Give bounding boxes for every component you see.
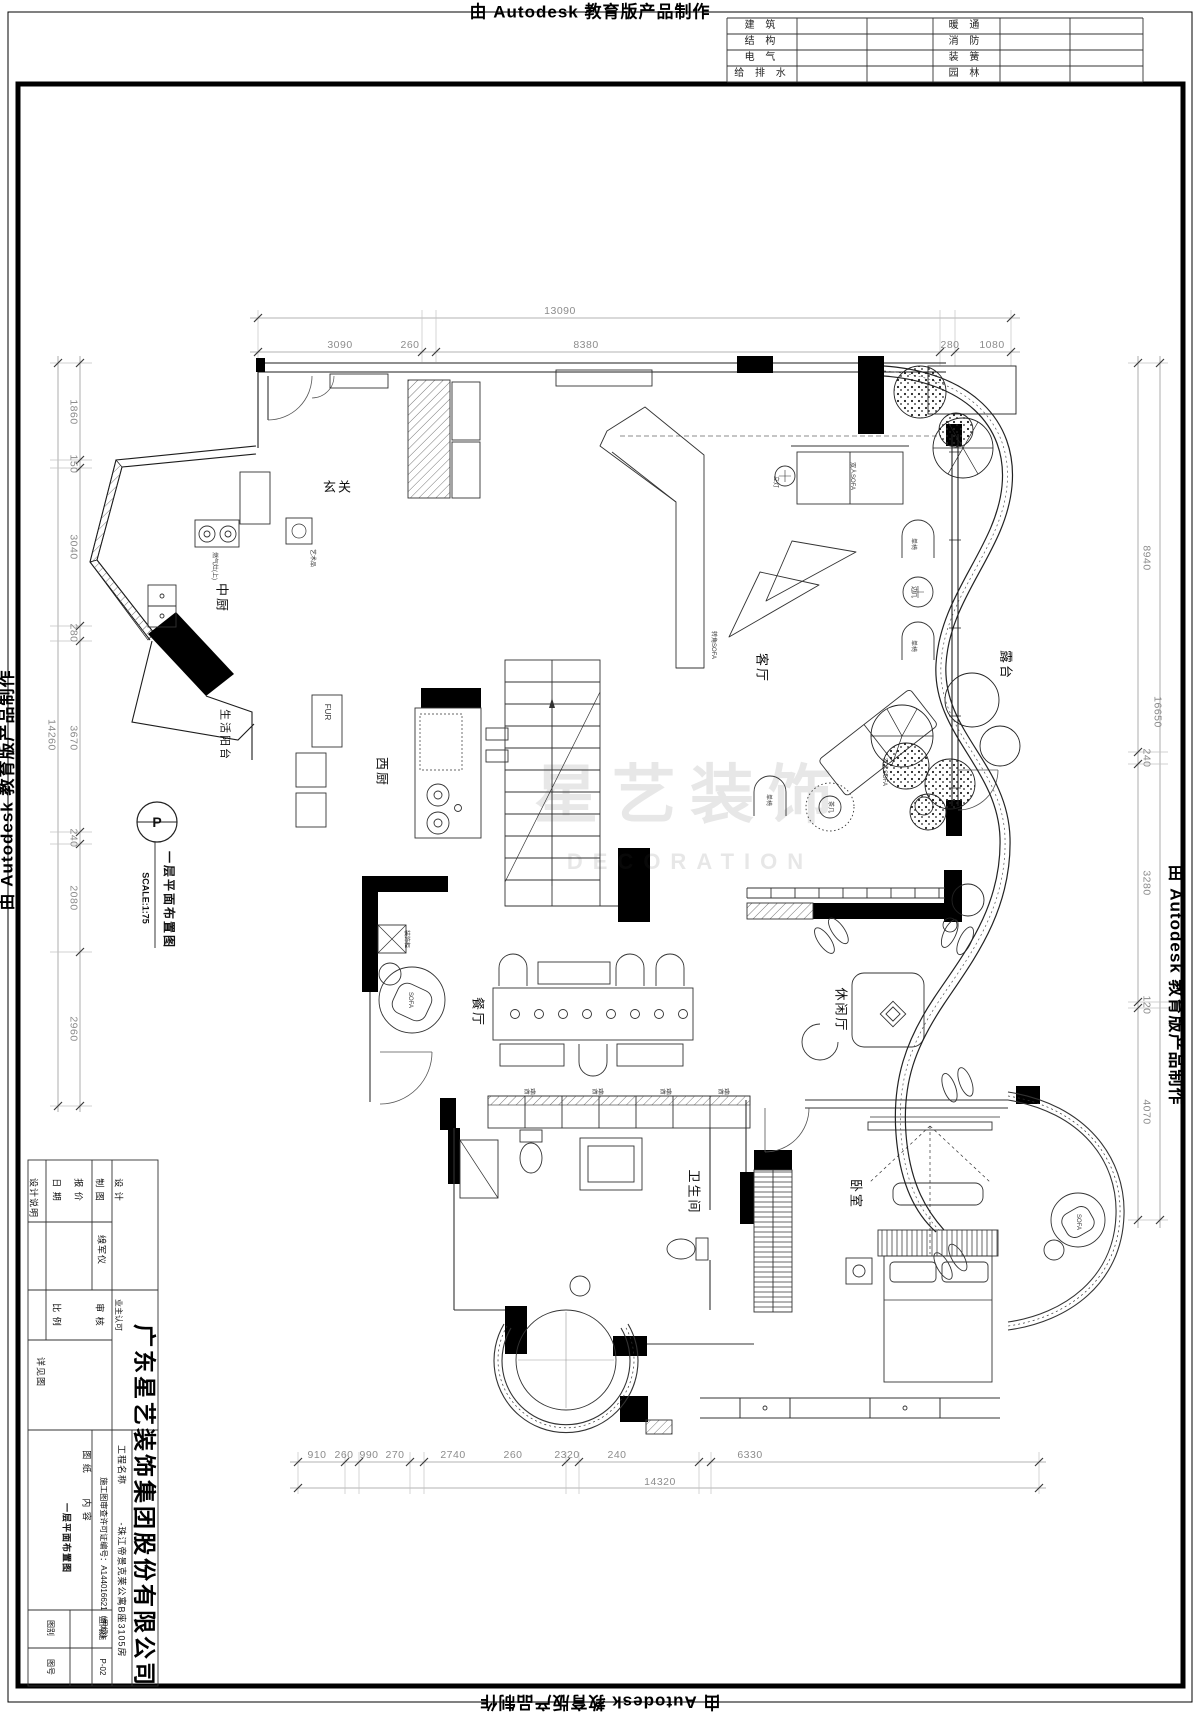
dim-left-seg-4: 3670	[68, 725, 79, 750]
annotation-dining-cabinet-1: 餐柜	[524, 1087, 536, 1093]
dim-right-seg-1: 240	[1141, 748, 1152, 767]
stamp-title: 一层平面布置图	[163, 851, 175, 949]
table-cell-struct: 结 构	[745, 37, 780, 47]
autodesk-banner-left: 由 Autodesk 教育版产品制作	[0, 670, 16, 911]
table-cell-plumb: 给 排 水	[734, 69, 790, 79]
dim-bottom-seg-4: 2740	[440, 1450, 465, 1461]
table-cell-fire: 消 防	[949, 37, 984, 47]
terrace	[871, 366, 1020, 1232]
stamp-mark: P	[152, 815, 161, 829]
annotation-chair-1: 单椅	[910, 538, 916, 550]
stamp-scale: SCALE:1:75	[141, 872, 150, 924]
dim-bottom-seg-2: 990	[359, 1450, 378, 1461]
titleblock-sheet-content: 一层平面布置图	[62, 1503, 71, 1573]
dim-left-seg-5: 240	[68, 828, 79, 847]
room-label-terrace: 露台	[1000, 650, 1013, 680]
dim-top-seg-4: 1080	[979, 340, 1004, 351]
titleblock-design-label: 设 计	[114, 1178, 123, 1202]
dim-left-seg-1: 150	[68, 454, 79, 473]
titleblock-content-label: 内 容	[82, 1498, 91, 1522]
dim-left-seg-3: 280	[68, 623, 79, 642]
room-label-bath: 卫生间	[688, 1169, 701, 1214]
titleblock-project-label: 工程名称	[117, 1445, 126, 1485]
titleblock-note: 设计说明	[29, 1178, 38, 1218]
dim-right-seg-2: 3280	[1141, 870, 1152, 895]
watermark-en: DECORATION	[567, 851, 813, 873]
annotation-chair-3: 单椅	[765, 794, 771, 806]
annotation-dining-cabinet-4: 餐柜	[718, 1087, 730, 1093]
dim-bottom-seg-5: 260	[503, 1450, 522, 1461]
annotation-fur: FUR	[323, 704, 331, 720]
dim-bottom-seg-7: 240	[607, 1450, 626, 1461]
table-cell-arch: 建 筑	[745, 21, 780, 31]
dim-bottom-seg-3: 270	[385, 1450, 404, 1461]
autodesk-banner-right: 由 Autodesk 教育版产品制作	[1168, 865, 1185, 1106]
titleblock-project-value: -珠江帝景克莱公寓B座3105房	[117, 1522, 126, 1657]
titleblock-number-value: P-02	[98, 1659, 106, 1676]
dim-left-seg-0: 1860	[68, 399, 79, 424]
annotation-art: 艺术品	[309, 549, 315, 567]
table-cell-hvac: 暖 通	[949, 21, 984, 31]
annotation-dining-cabinet-3: 餐柜	[660, 1087, 672, 1093]
dim-bottom-total: 14320	[644, 1477, 676, 1488]
cad-sheet: 由 Autodesk 教育版产品制作 由 Autodesk 教育版产品制作 由 …	[0, 0, 1200, 1714]
room-label-mid-kitchen: 中厨	[216, 583, 229, 613]
room-label-west-kitchen: 西厨	[376, 757, 389, 787]
titleblock-review-label: 审 核	[95, 1303, 104, 1327]
annotation-chair-2: 单椅	[910, 640, 916, 652]
annotation-sofa-corner: 转角SOFA	[710, 631, 716, 659]
annotation-bay-sofa: SOFA	[1075, 1214, 1081, 1230]
dim-top-seg-3: 280	[940, 340, 959, 351]
dim-bottom-seg-6: 2320	[554, 1450, 579, 1461]
titleblock-company: 广东星艺装饰集团股份有限公司	[133, 1324, 156, 1688]
titleblock-category-label: 图别	[46, 1620, 54, 1636]
room-label-leisure: 休闲厅	[835, 987, 848, 1032]
dimension-ticks	[54, 314, 1164, 1492]
bathroom-fixtures	[454, 1128, 710, 1310]
room-label-bedroom: 卧室	[850, 1179, 863, 1209]
dim-right-seg-3: 120	[1141, 995, 1152, 1014]
dim-left-total: 14260	[46, 719, 57, 751]
dim-top-total: 13090	[544, 306, 576, 317]
annotation-stove: 燃气灶(上)	[211, 552, 217, 580]
room-label-dining: 餐厅	[472, 997, 485, 1027]
living-window-wall	[620, 434, 998, 810]
titleblock-designer: 缐军仪	[97, 1235, 106, 1265]
leisure-furniture	[802, 915, 977, 1282]
dim-top-seg-2: 8380	[573, 340, 598, 351]
dim-left-seg-2: 3040	[68, 534, 79, 559]
annotation-side-table: 边几	[910, 586, 916, 598]
entry-cabinets	[330, 370, 652, 498]
titleblock-quote-label: 报 价	[74, 1178, 83, 1202]
titleblock-number-label: 图号	[46, 1659, 54, 1675]
titleblock-draft-label: 制 图	[95, 1178, 104, 1202]
room-label-living: 客厅	[756, 653, 769, 683]
table-cell-elec: 电 气	[745, 53, 780, 63]
titleblock-owner-label: 业主认可	[114, 1299, 122, 1331]
annotation-dining-cabinet-2: 餐柜	[592, 1087, 604, 1093]
titleblock-scale-label: 比 例	[52, 1303, 61, 1327]
dim-bottom-seg-1: 260	[334, 1450, 353, 1461]
dim-left-seg-7: 2960	[68, 1016, 79, 1041]
titleblock-detail-label: 详见图	[36, 1357, 45, 1387]
kitchen-fixtures	[148, 472, 312, 627]
table-cell-garden: 园 林	[949, 69, 984, 79]
titleblock-sheet-label: 图 纸	[82, 1450, 91, 1474]
dim-bottom-seg-0: 910	[307, 1450, 326, 1461]
dim-bottom-seg-8: 6330	[737, 1450, 762, 1461]
annotation-sofa-double-1: 双人SOFA	[849, 462, 855, 490]
dim-top-seg-1: 260	[400, 340, 419, 351]
annotation-sofa-double-2: 双人SOFA	[881, 758, 887, 786]
annotation-deco-cabinet: 装饰柜	[403, 930, 409, 948]
walls	[90, 363, 946, 760]
titleblock-date-label: 日 期	[52, 1178, 61, 1202]
dim-right-seg-4: 4070	[1141, 1099, 1152, 1124]
titleblock-category-value: 室内施	[98, 1616, 106, 1640]
dim-left-seg-6: 2080	[68, 885, 79, 910]
dim-right-total: 16650	[1152, 696, 1163, 728]
room-label-entry: 玄关	[323, 481, 353, 494]
annotation-sofa-round: SOFA	[407, 992, 413, 1008]
autodesk-banner-bottom: 由 Autodesk 教育版产品制作	[480, 1694, 721, 1711]
table-cell-deco: 装 簧	[949, 53, 984, 63]
dim-right-seg-0: 8940	[1141, 545, 1152, 570]
annotation-tea-table: 茶几	[827, 801, 833, 813]
annotation-floor-lamp: 立灯	[772, 476, 778, 488]
dining-furniture	[370, 925, 750, 1128]
dim-top-seg-0: 3090	[327, 340, 352, 351]
room-label-service-balcony: 生活阳台	[219, 709, 230, 761]
bedroom	[700, 1092, 1124, 1418]
watermark-cn: 星艺装饰	[534, 763, 846, 827]
autodesk-banner-top: 由 Autodesk 教育版产品制作	[470, 4, 711, 21]
